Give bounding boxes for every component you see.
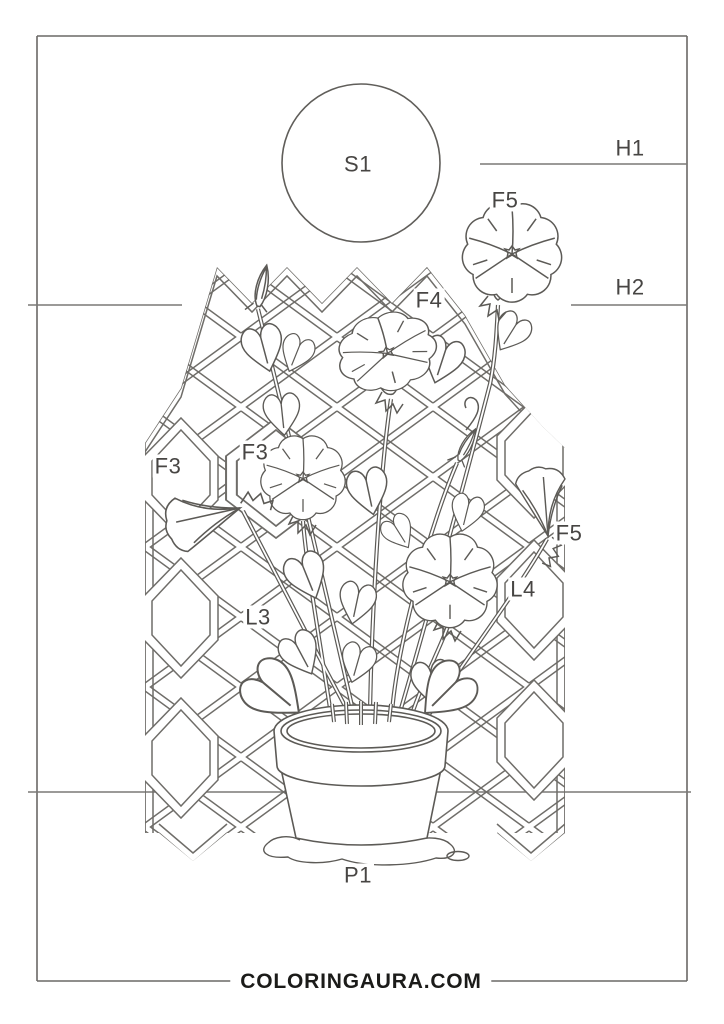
label-f4: F4 [414, 288, 445, 311]
label-l3: L3 [243, 605, 272, 628]
label-p1: P1 [342, 863, 374, 886]
label-f3-left: F3 [153, 454, 184, 477]
site-name: COLORINGAURA.COM [230, 970, 491, 994]
label-s1: S1 [342, 152, 374, 175]
coloring-page: S1 H1 F5 F4 H2 F3 F3 F5 L4 L3 P1 COLORIN… [0, 0, 724, 1024]
label-f5-right: F5 [554, 521, 585, 544]
label-h2: H2 [613, 275, 646, 298]
flower-pot [274, 705, 448, 845]
label-f5-top: F5 [490, 188, 521, 211]
label-h1: H1 [613, 136, 646, 159]
label-f3-mid: F3 [240, 440, 271, 463]
label-l4: L4 [508, 577, 537, 600]
